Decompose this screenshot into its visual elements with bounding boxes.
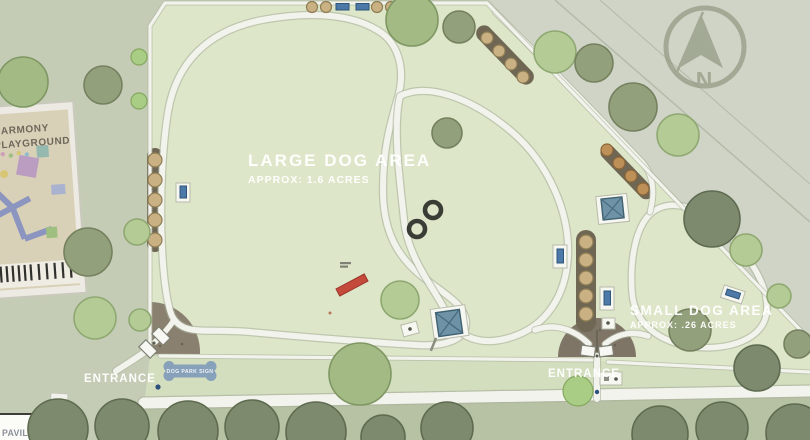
micro-sign	[340, 266, 348, 268]
amenity-pad-divider	[602, 318, 615, 329]
tree	[0, 57, 48, 107]
drinking-fountain	[155, 384, 160, 389]
tree	[131, 49, 147, 65]
tree	[386, 0, 438, 46]
shade-structure-small-area	[596, 193, 630, 224]
bench	[356, 4, 369, 11]
large-dog-area-label: LARGE DOG AREA	[248, 151, 431, 170]
tree	[784, 330, 810, 358]
compass-north-letter: N	[696, 67, 713, 93]
tree	[575, 44, 613, 82]
bench-divider-right	[600, 287, 614, 310]
tree	[329, 343, 391, 405]
tree	[129, 309, 151, 331]
small-dog-area-label: SMALL DOG AREA	[630, 303, 773, 318]
entrance-south-label: ENTRANCE	[548, 368, 620, 380]
tree	[734, 345, 780, 391]
tree	[64, 228, 112, 276]
tree	[381, 281, 419, 319]
tree	[563, 376, 593, 406]
tree	[730, 234, 762, 266]
dog-park-site-plan: DOG PARK SIGN HARM	[0, 0, 810, 440]
small-dog-area-acres: APPROX: .26 ACRES	[630, 320, 737, 330]
tree	[124, 219, 150, 245]
tree	[684, 191, 740, 247]
tree	[432, 118, 462, 148]
dog-park-sign-label: DOG PARK SIGN	[167, 369, 214, 375]
tree	[609, 83, 657, 131]
map-canvas: DOG PARK SIGN HARM	[0, 0, 810, 440]
tree	[131, 93, 147, 109]
bench	[336, 4, 349, 11]
entrance-west-label: ENTRANCE	[84, 373, 156, 385]
large-dog-area-acres: APPROX: 1.6 ACRES	[248, 174, 370, 186]
tree	[74, 297, 116, 339]
micro-sign	[340, 262, 351, 264]
tree	[534, 31, 576, 73]
tree	[443, 11, 475, 43]
bench-west	[176, 183, 190, 202]
bench-divider-left	[553, 245, 567, 268]
tree	[657, 114, 699, 156]
drinking-fountain	[595, 390, 599, 394]
tree	[84, 66, 122, 104]
